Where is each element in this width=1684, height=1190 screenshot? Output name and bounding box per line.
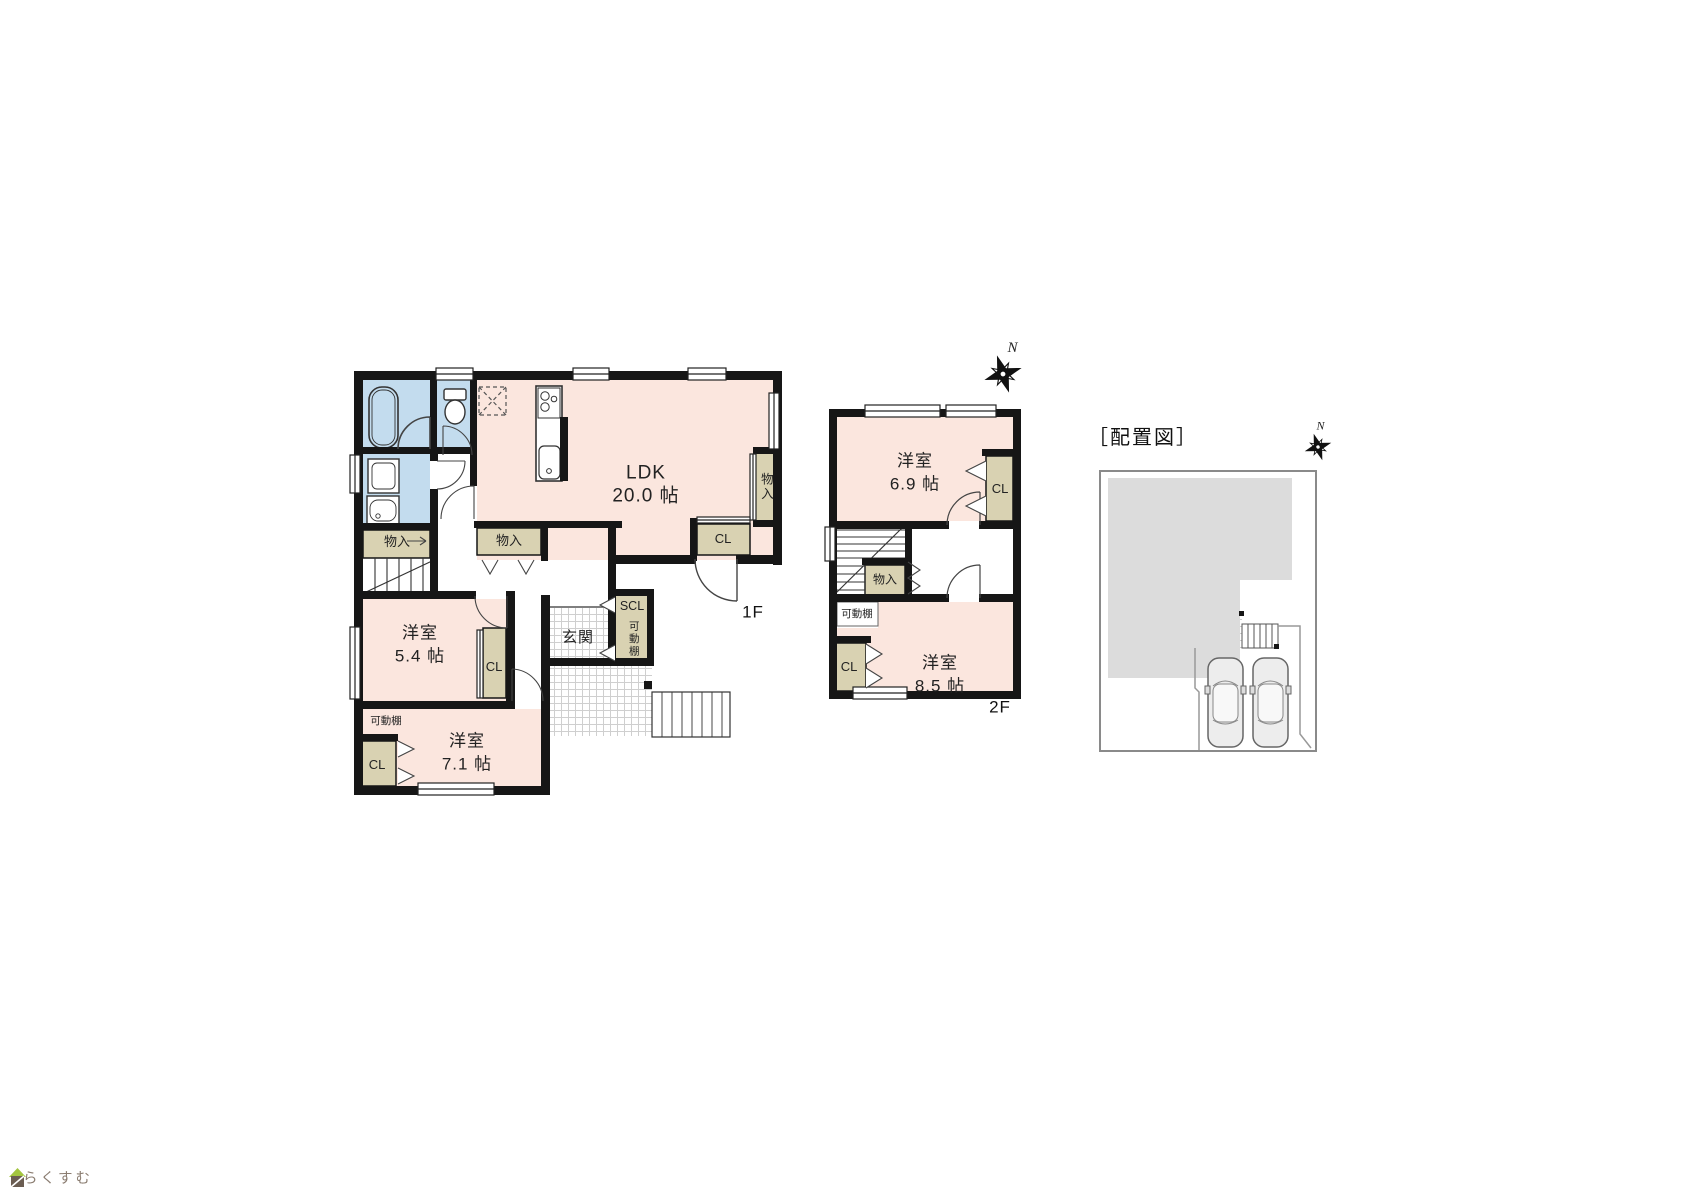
room-label-71: 洋室: [449, 733, 485, 752]
room-label-ldk: LDK: [626, 464, 666, 485]
kitchen-counter-icon: [536, 386, 562, 481]
closet-label: CL: [715, 532, 732, 546]
room-label-54: 洋室: [402, 625, 438, 644]
sink-icon: [539, 446, 560, 479]
site-plan: [1100, 471, 1316, 751]
car-icon: [1250, 658, 1291, 747]
room-size-85: 8.5 帖: [915, 678, 965, 697]
closet-label: CL: [841, 660, 858, 674]
storage-label: 物入: [384, 535, 410, 549]
storage-label: 物入: [496, 534, 522, 548]
room-size-71: 7.1 帖: [442, 756, 492, 775]
porch-steps: [644, 681, 730, 737]
floor-label-1f: 1F: [742, 604, 764, 623]
compass-icon: [978, 349, 1027, 398]
floorplan-sheet: LDK 20.0 帖 物入 物入 物入 洋室 5.4 帖 CL 可動棚 CL 洋…: [0, 0, 1684, 1190]
floor-label-2f: 2F: [989, 699, 1011, 718]
shelf-label: 可動棚: [841, 609, 873, 621]
washing-machine-icon: [368, 459, 399, 493]
closet-label: CL: [369, 758, 386, 772]
compass-north-label: N: [1316, 419, 1325, 432]
site-plan-title: ［配置図］: [1088, 427, 1198, 449]
logo-text: らくすむ: [23, 1172, 93, 1188]
shelf-label: 可動棚: [370, 716, 402, 728]
stairs-1f: [364, 558, 432, 595]
room-label-69: 洋室: [897, 453, 933, 472]
site-entry-steps: [1239, 611, 1279, 649]
closet-label: CL: [486, 660, 503, 674]
room-label-85: 洋室: [922, 655, 958, 674]
plan-drawing: [0, 0, 1684, 1190]
stove-icon: [538, 388, 560, 418]
room-size-69: 6.9 帖: [890, 476, 940, 495]
shelf-label: 可動棚: [627, 620, 639, 658]
room-size-ldk: 20.0 帖: [612, 487, 679, 508]
entrance-label: 玄関: [562, 630, 594, 647]
room-size-54: 5.4 帖: [395, 648, 445, 667]
toilet-icon: [444, 389, 466, 424]
car-icon: [1205, 658, 1246, 747]
compass-icon: [1300, 429, 1335, 464]
storage-label: 物入: [873, 573, 897, 586]
storage-label: 物入: [758, 473, 772, 502]
scl-label: SCL: [620, 600, 644, 614]
closet-label: CL: [992, 482, 1009, 496]
compass-north-label: N: [1007, 340, 1018, 357]
vanity-icon: [367, 496, 399, 524]
